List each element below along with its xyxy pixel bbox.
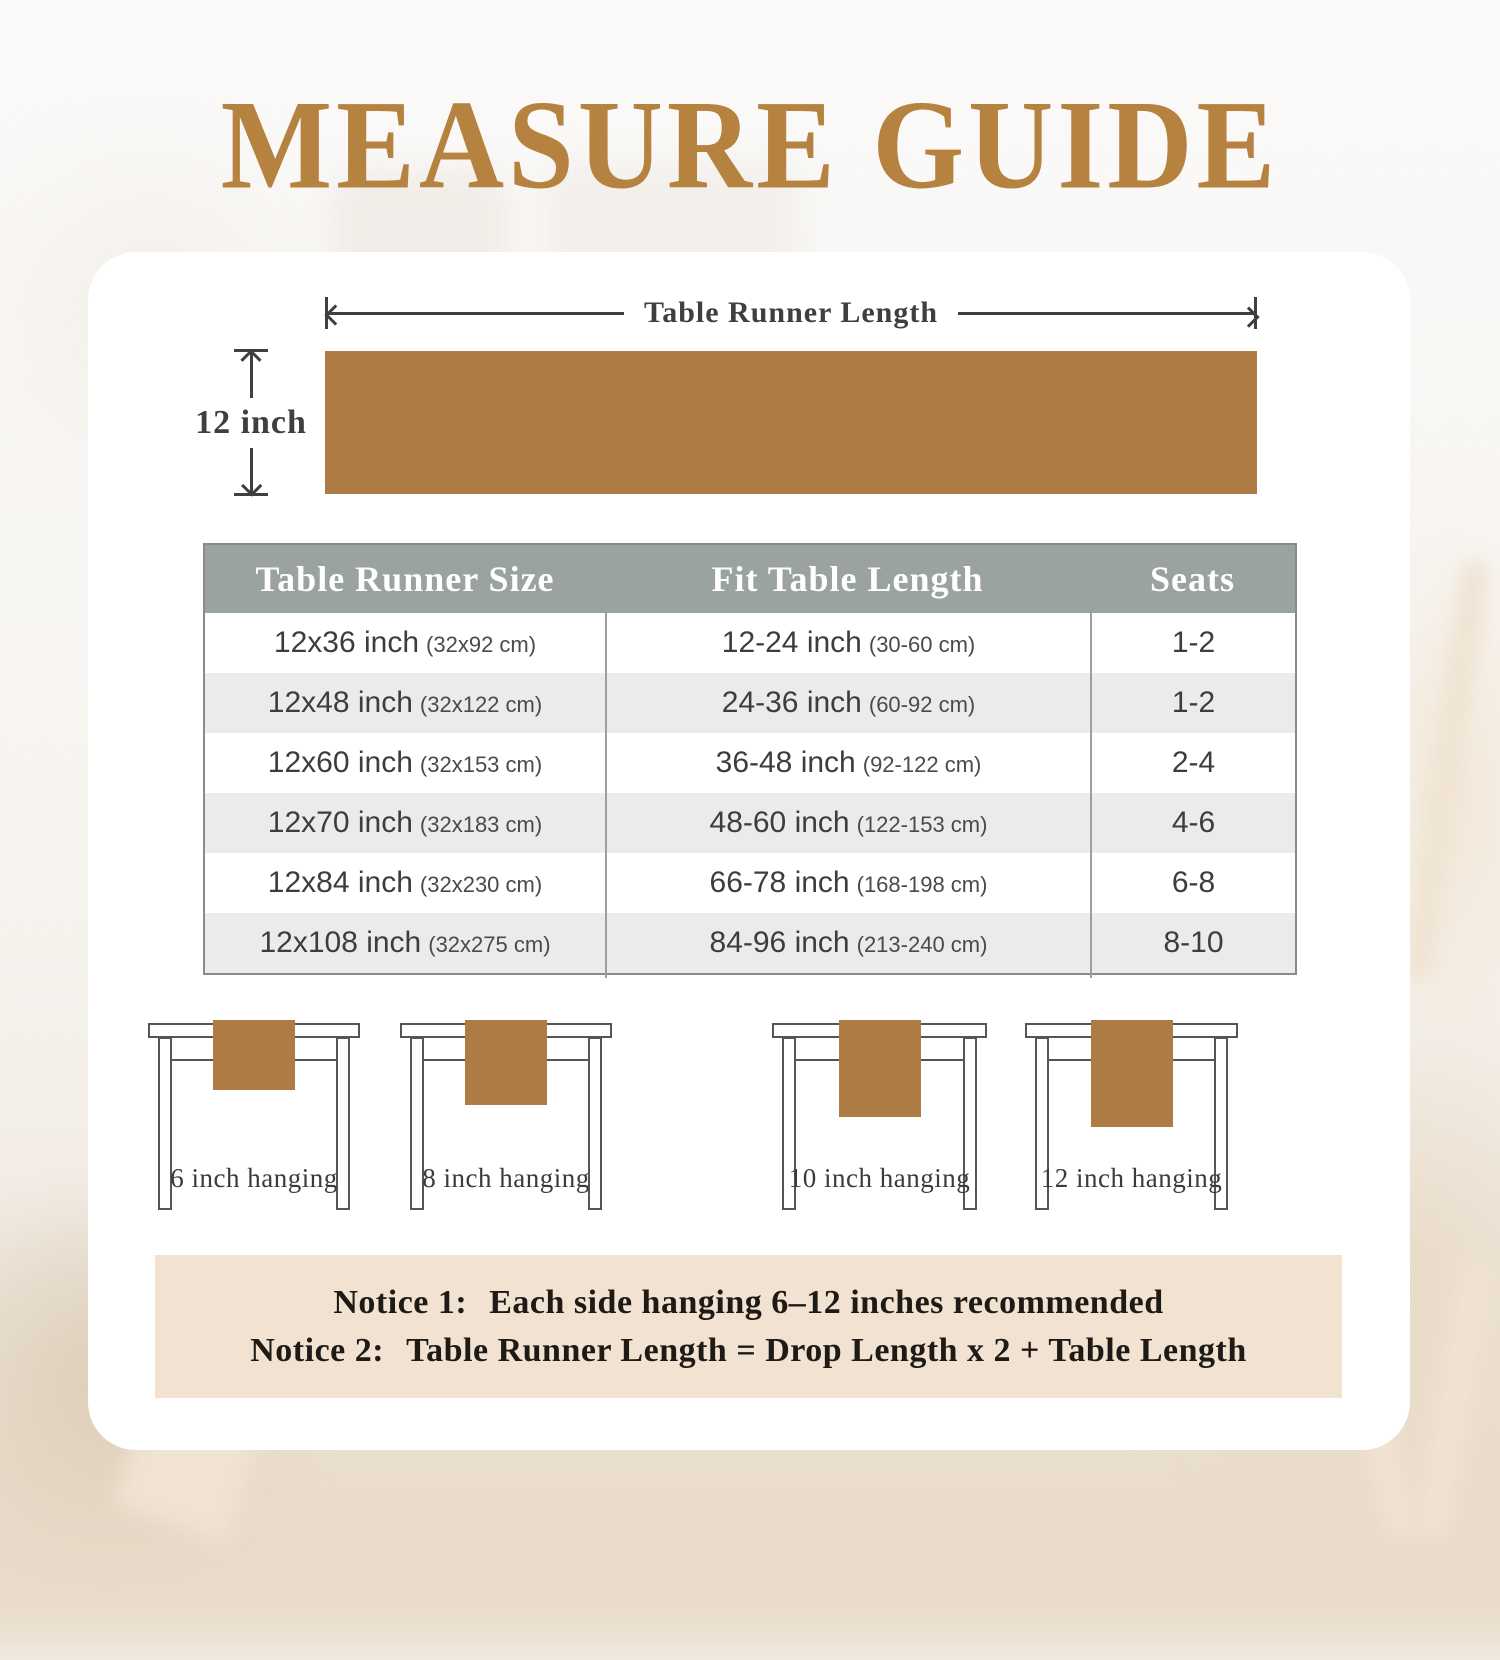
- notice-2-label: Notice 2:: [250, 1332, 384, 1369]
- header-fit-length: Fit Table Length: [605, 545, 1090, 613]
- arrow-line: [250, 352, 253, 398]
- notice-2-text: Table Runner Length = Drop Length x 2 + …: [406, 1332, 1247, 1369]
- hanging-illustration-8in: 8 inch hanging: [400, 1020, 612, 1232]
- table-row: 12x108 inch(32x275 cm) 84-96 inch(213-24…: [205, 913, 1295, 973]
- size-cell: 12x70 inch(32x183 cm): [205, 793, 605, 858]
- runner-drape: [465, 1020, 547, 1105]
- notice-1-label: Notice 1:: [333, 1284, 467, 1321]
- table-row: 12x60 inch(32x153 cm) 36-48 inch(92-122 …: [205, 733, 1295, 793]
- table-row: 12x36 inch(32x92 cm) 12-24 inch(30-60 cm…: [205, 613, 1295, 673]
- arrow-head-up-icon: [240, 349, 261, 370]
- header-seats: Seats: [1090, 545, 1295, 613]
- notice-1-text: Each side hanging 6–12 inches recommende…: [489, 1284, 1163, 1321]
- size-cell: 12x60 inch(32x153 cm): [205, 733, 605, 798]
- fit-cell: 36-48 inch(92-122 cm): [605, 733, 1090, 798]
- runner-drape: [213, 1020, 295, 1090]
- fit-cell: 66-78 inch(168-198 cm): [605, 853, 1090, 918]
- fit-cell: 24-36 inch(60-92 cm): [605, 673, 1090, 738]
- size-cell: 12x108 inch(32x275 cm): [205, 913, 605, 978]
- notice-box: Notice 1:Each side hanging 6–12 inches r…: [155, 1255, 1342, 1398]
- size-cell: 12x36 inch(32x92 cm): [205, 613, 605, 678]
- width-dimension-arrow: 12 inch: [186, 349, 316, 496]
- seats-cell: 6-8: [1090, 853, 1295, 918]
- fit-cell: 12-24 inch(30-60 cm): [605, 613, 1090, 678]
- hanging-label: 10 inch hanging: [772, 1163, 987, 1194]
- arrow-line: [328, 312, 624, 315]
- table-row: 12x70 inch(32x183 cm) 48-60 inch(122-153…: [205, 793, 1295, 853]
- runner-drape: [839, 1020, 921, 1117]
- seats-cell: 4-6: [1090, 793, 1295, 858]
- hanging-label: 8 inch hanging: [400, 1163, 612, 1194]
- table-row: 12x48 inch(32x122 cm) 24-36 inch(60-92 c…: [205, 673, 1295, 733]
- seats-cell: 1-2: [1090, 673, 1295, 738]
- runner-drape: [1091, 1020, 1173, 1127]
- header-runner-size: Table Runner Size: [205, 545, 605, 613]
- table-runner-swatch: [325, 351, 1257, 494]
- hanging-illustration-6in: 6 inch hanging: [148, 1020, 360, 1232]
- page-title: MEASURE GUIDE: [0, 72, 1500, 219]
- table-row: 12x84 inch(32x230 cm) 66-78 inch(168-198…: [205, 853, 1295, 913]
- hanging-illustration-10in: 10 inch hanging: [772, 1020, 987, 1232]
- seats-cell: 8-10: [1090, 913, 1295, 978]
- size-cell: 12x84 inch(32x230 cm): [205, 853, 605, 918]
- hanging-label: 6 inch hanging: [148, 1163, 360, 1194]
- guide-card: Table Runner Length 12 inch Table Runner…: [88, 252, 1410, 1450]
- size-cell: 12x48 inch(32x122 cm): [205, 673, 605, 738]
- size-table-header: Table Runner Size Fit Table Length Seats: [205, 545, 1295, 613]
- measure-guide-infographic: { "page": { "title": "MEASURE GUIDE" }, …: [0, 0, 1500, 1500]
- arrow-line: [250, 448, 253, 494]
- arrow-line: [958, 312, 1254, 315]
- seats-cell: 2-4: [1090, 733, 1295, 798]
- length-arrow-label: Table Runner Length: [644, 296, 938, 330]
- length-dimension-arrow: Table Runner Length: [325, 296, 1257, 330]
- width-arrow-label: 12 inch: [195, 404, 307, 442]
- fit-cell: 48-60 inch(122-153 cm): [605, 793, 1090, 858]
- fit-cell: 84-96 inch(213-240 cm): [605, 913, 1090, 978]
- seats-cell: 1-2: [1090, 613, 1295, 678]
- hanging-illustration-12in: 12 inch hanging: [1025, 1020, 1238, 1232]
- hanging-label: 12 inch hanging: [1025, 1163, 1238, 1194]
- size-table: Table Runner Size Fit Table Length Seats…: [203, 543, 1297, 975]
- notice-2: Notice 2:Table Runner Length = Drop Leng…: [250, 1332, 1246, 1370]
- notice-1: Notice 1:Each side hanging 6–12 inches r…: [333, 1284, 1163, 1322]
